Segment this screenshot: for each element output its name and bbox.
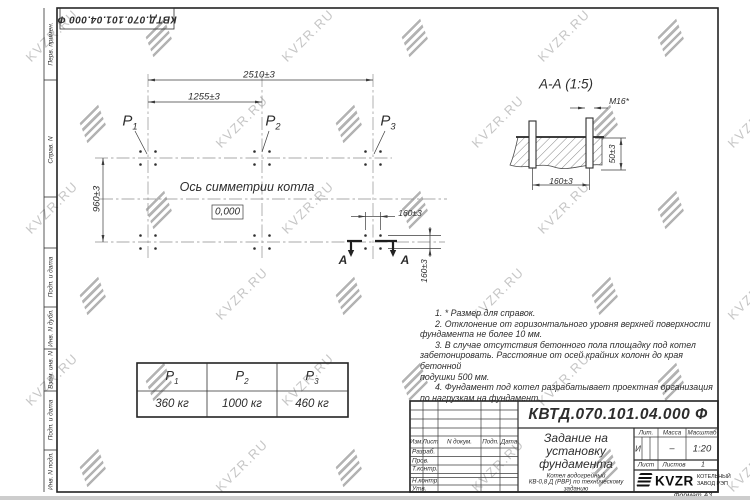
dim-50: 50±3 bbox=[607, 145, 617, 164]
p3-index: 3 bbox=[390, 122, 395, 132]
dim-1255: 1255±3 bbox=[188, 92, 220, 103]
scale-value: 1:20 bbox=[693, 443, 712, 454]
p3-symbol: P bbox=[305, 368, 314, 383]
lit-header: Лит. bbox=[639, 429, 654, 436]
header-data: Дата bbox=[501, 439, 517, 446]
sheet-label: Лист bbox=[638, 462, 654, 469]
table-header-p2: P2 bbox=[235, 368, 248, 386]
anchor-bolt-dots bbox=[139, 150, 382, 250]
plan-view-lines bbox=[95, 74, 447, 260]
load-point-label-p1: P1 bbox=[122, 113, 137, 132]
dim-160-horizontal: 160±3 bbox=[398, 208, 422, 218]
p2-index: 2 bbox=[275, 122, 280, 132]
margin-label-podp-i-data-1: Подп. и дата bbox=[47, 257, 54, 298]
p2-index: 2 bbox=[244, 377, 248, 386]
doc-title-line-1: Задание на bbox=[544, 431, 608, 445]
dim-2510: 2510±3 bbox=[243, 70, 275, 81]
header-podp: Подп. bbox=[482, 439, 498, 446]
p3-index: 3 bbox=[314, 377, 318, 386]
top-stamp-doc-number: КВТД.070.101.04.000 Ф bbox=[57, 13, 176, 24]
anchor-bolt-left bbox=[529, 121, 536, 168]
p2-symbol: P bbox=[265, 113, 275, 130]
doc-title-line-2: установку bbox=[546, 444, 606, 458]
sig-row-prov: Пров. bbox=[412, 457, 429, 464]
sig-row-tkontr: Т.контр. bbox=[412, 466, 438, 473]
mass-value: – bbox=[669, 443, 674, 453]
header-izm: Изм. bbox=[410, 439, 423, 446]
p1-index: 1 bbox=[132, 122, 137, 132]
p3-symbol: P bbox=[380, 113, 390, 130]
window-bottom-edge bbox=[0, 496, 750, 500]
header-list: Лист bbox=[423, 439, 439, 446]
lit-value: И bbox=[635, 444, 641, 453]
note-line: подушки 500 мм. bbox=[420, 372, 720, 383]
p1-symbol: P bbox=[122, 113, 132, 130]
technical-notes: 1. * Размер для справок. 2. Отклонение о… bbox=[420, 308, 720, 403]
load-point-label-p3: P3 bbox=[380, 113, 395, 132]
sheets-value: 1 bbox=[701, 462, 705, 469]
dim-960: 960±3 bbox=[92, 186, 103, 212]
anchor-bolt-right bbox=[586, 118, 593, 168]
dim-160-section: 160±3 bbox=[549, 176, 573, 186]
section-mark-right: А bbox=[401, 253, 410, 267]
dim-160-vertical: 160±3 bbox=[419, 259, 429, 283]
margin-label-inv-n-podl: Инв. N подл. bbox=[47, 452, 54, 490]
table-header-p3: P3 bbox=[305, 368, 318, 386]
linework-svg bbox=[0, 0, 750, 500]
scale-header: Масштаб bbox=[688, 429, 717, 436]
p2-symbol: P bbox=[235, 368, 244, 383]
margin-label-sprav-n: Справ. N bbox=[47, 136, 54, 163]
margin-label-podp-i-data-2: Подп. и дата bbox=[47, 400, 54, 441]
note-line: 1. * Размер для справок. bbox=[420, 308, 720, 319]
company-name: KVZR bbox=[655, 473, 694, 488]
thread-label-m16: М16* bbox=[609, 96, 629, 106]
margin-label-vzam-inv-n: Взам. инв. N bbox=[47, 351, 54, 389]
company-line-1: КОТЕЛЬНЫЙ bbox=[697, 474, 731, 480]
sig-row-utv: Утв. bbox=[412, 485, 427, 492]
symmetry-axis-label: Ось симметрии котла bbox=[180, 180, 315, 194]
mass-header: Масса bbox=[663, 429, 681, 436]
title-block-doc-number: КВТД.070.101.04.000 Ф bbox=[528, 406, 707, 424]
company-line-2: ЗАВОД РЭП bbox=[697, 481, 728, 487]
p1-symbol: P bbox=[165, 368, 174, 383]
note-line: по нагрузкам на фундамент. bbox=[420, 393, 720, 404]
doc-subtitle-line-3: заданию bbox=[564, 485, 589, 492]
table-header-p1: P1 bbox=[165, 368, 178, 386]
table-value-p1: 360 кг bbox=[155, 398, 188, 410]
section-title: А-А (1:5) bbox=[539, 77, 593, 92]
load-point-label-p2: P2 bbox=[265, 113, 280, 132]
sheets-label: Листов bbox=[662, 462, 685, 469]
level-mark: 0,000 bbox=[215, 207, 240, 218]
note-line: 2. Отклонение от горизонтального уровня … bbox=[420, 319, 720, 330]
margin-label-inv-n-dubl: Инв. N дубл. bbox=[47, 309, 54, 347]
p1-index: 1 bbox=[174, 377, 178, 386]
note-line: фундамента не более 10 мм. bbox=[420, 329, 720, 340]
section-mark-left: А bbox=[339, 253, 348, 267]
note-line: 3. В случае отсутствия бетонного пола пл… bbox=[420, 340, 720, 351]
drawing-sheet: KVZR.RUKVZR.RUKVZR.RUKVZR.RUKVZR.RUKVZR.… bbox=[0, 0, 750, 500]
note-line: забетонировать. Расстояние от осей крайн… bbox=[420, 350, 720, 371]
sig-row-nkontr: Н.контр. bbox=[412, 478, 439, 485]
sig-row-razrab: Разраб. bbox=[412, 449, 435, 456]
margin-label-perv-primen: Перв. примен. bbox=[47, 22, 54, 65]
note-line: 4. Фундамент под котел разрабатывает про… bbox=[420, 382, 720, 393]
header-ndoc: N докум. bbox=[447, 439, 472, 446]
doc-title-line-3: фундамента bbox=[539, 457, 613, 471]
table-value-p3: 460 кг bbox=[295, 398, 328, 410]
table-value-p2: 1000 кг bbox=[222, 398, 262, 410]
